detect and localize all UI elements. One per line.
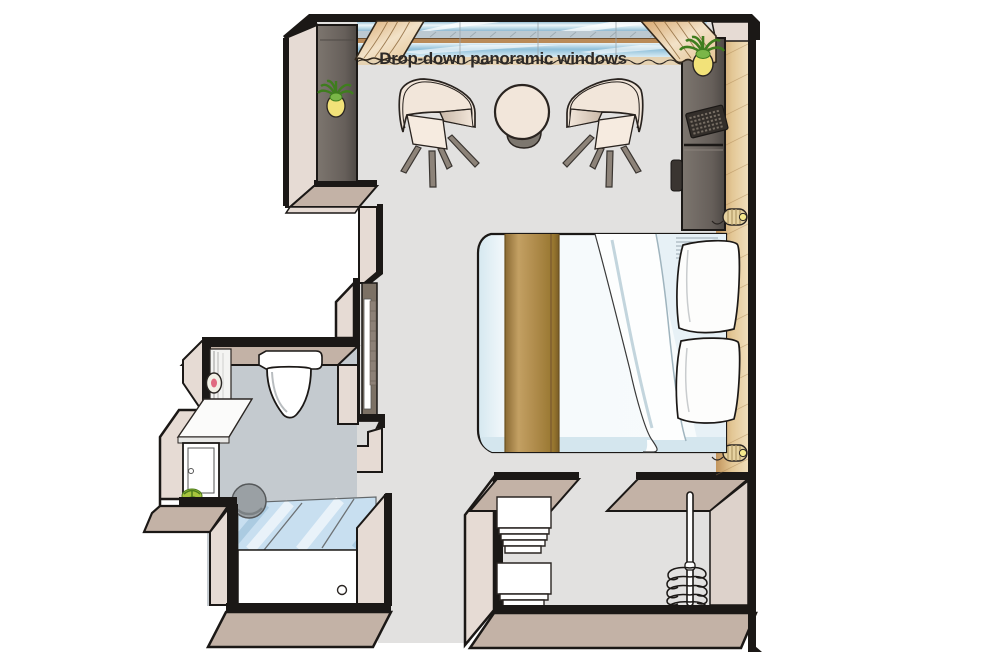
svg-text:Drop-down panoramic windows: Drop-down panoramic windows: [379, 49, 626, 68]
